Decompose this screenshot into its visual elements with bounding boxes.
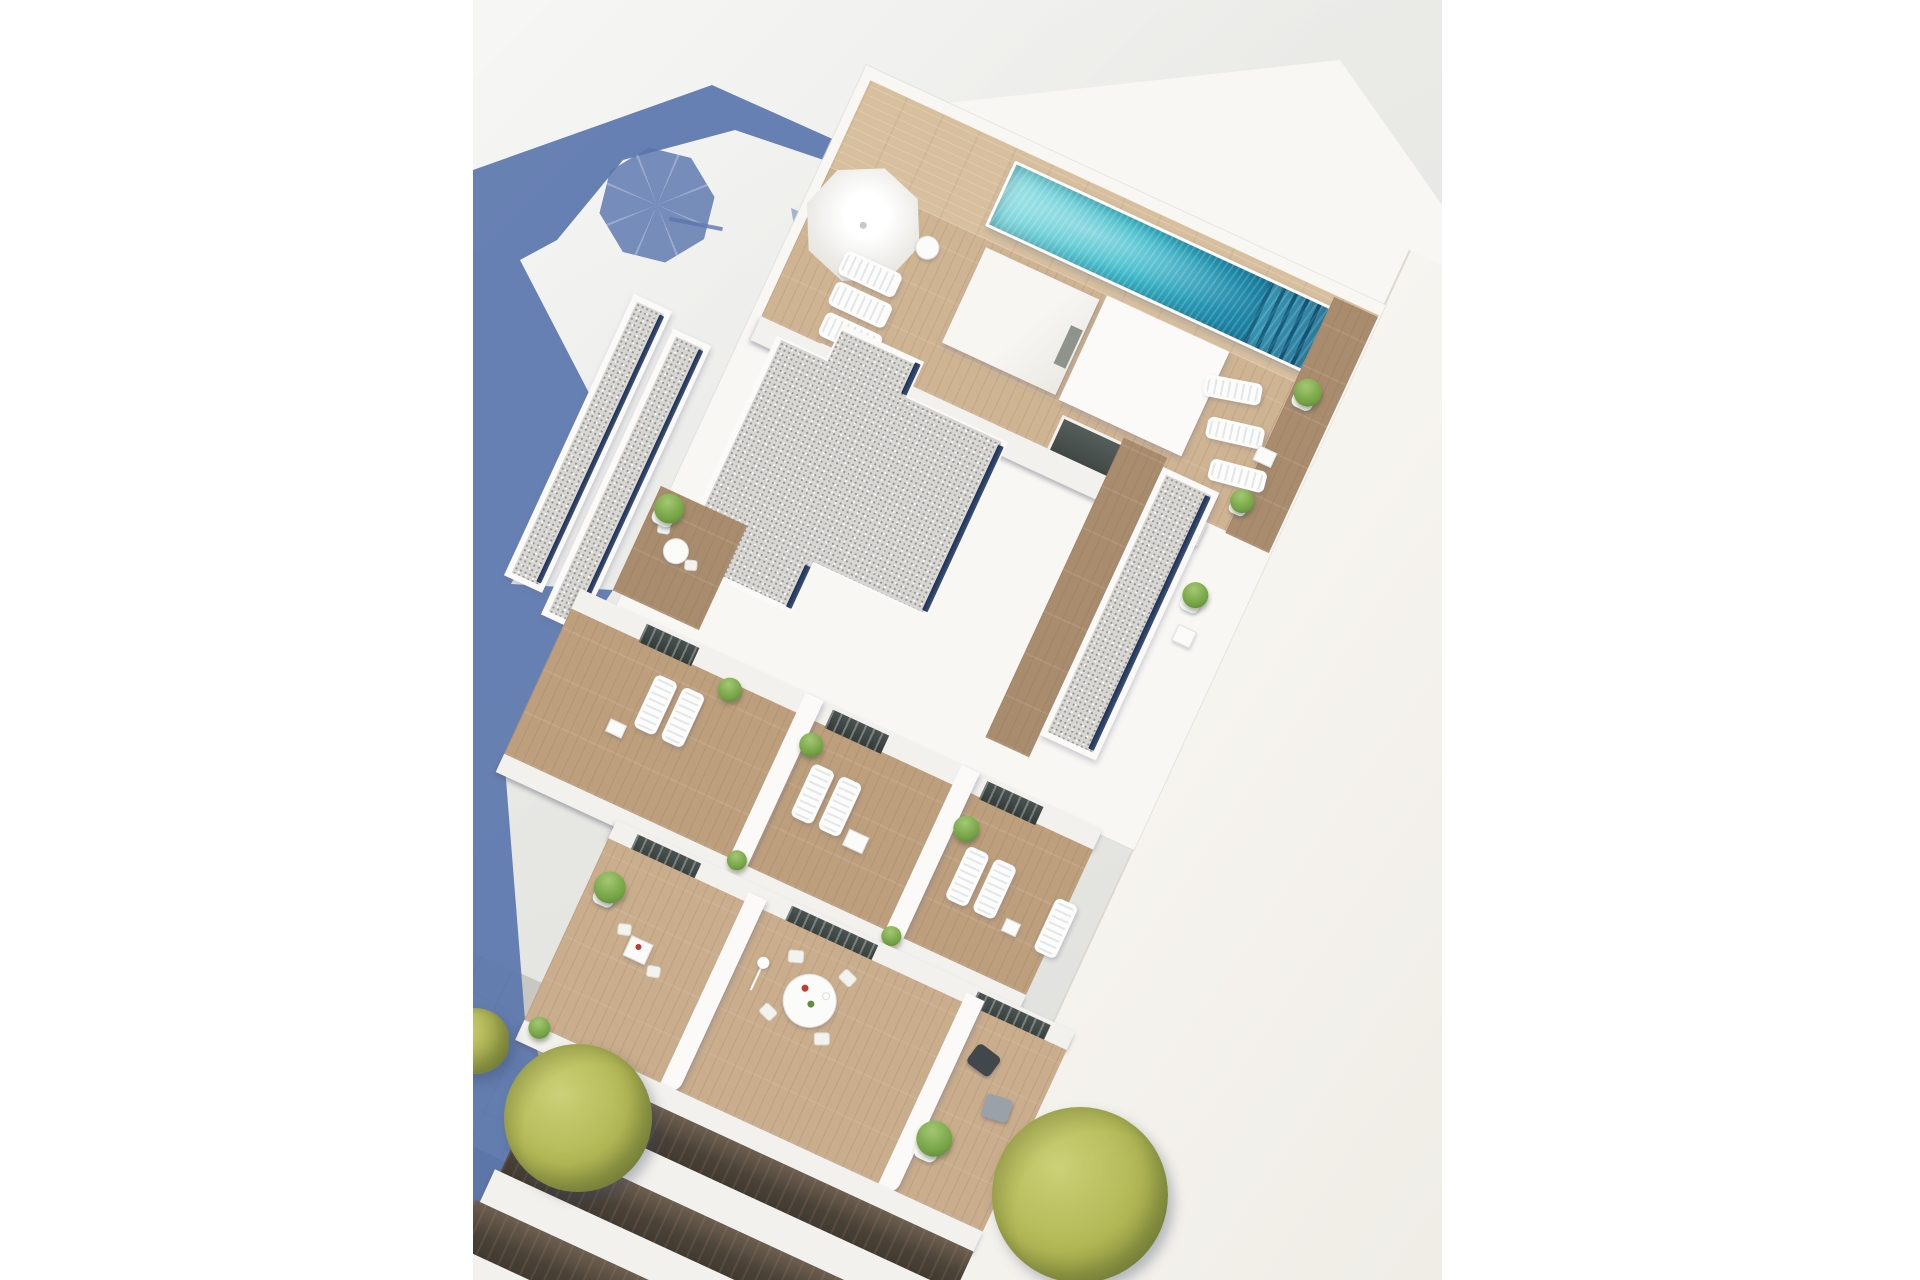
scene [473,0,1442,1280]
dining-chair [646,964,662,978]
street-tree [504,1044,652,1192]
cafe-chair [684,559,698,571]
dining-chair [787,949,804,963]
dining-chair [814,1032,830,1045]
dining-chair [617,923,632,937]
street-tree [992,1107,1168,1280]
